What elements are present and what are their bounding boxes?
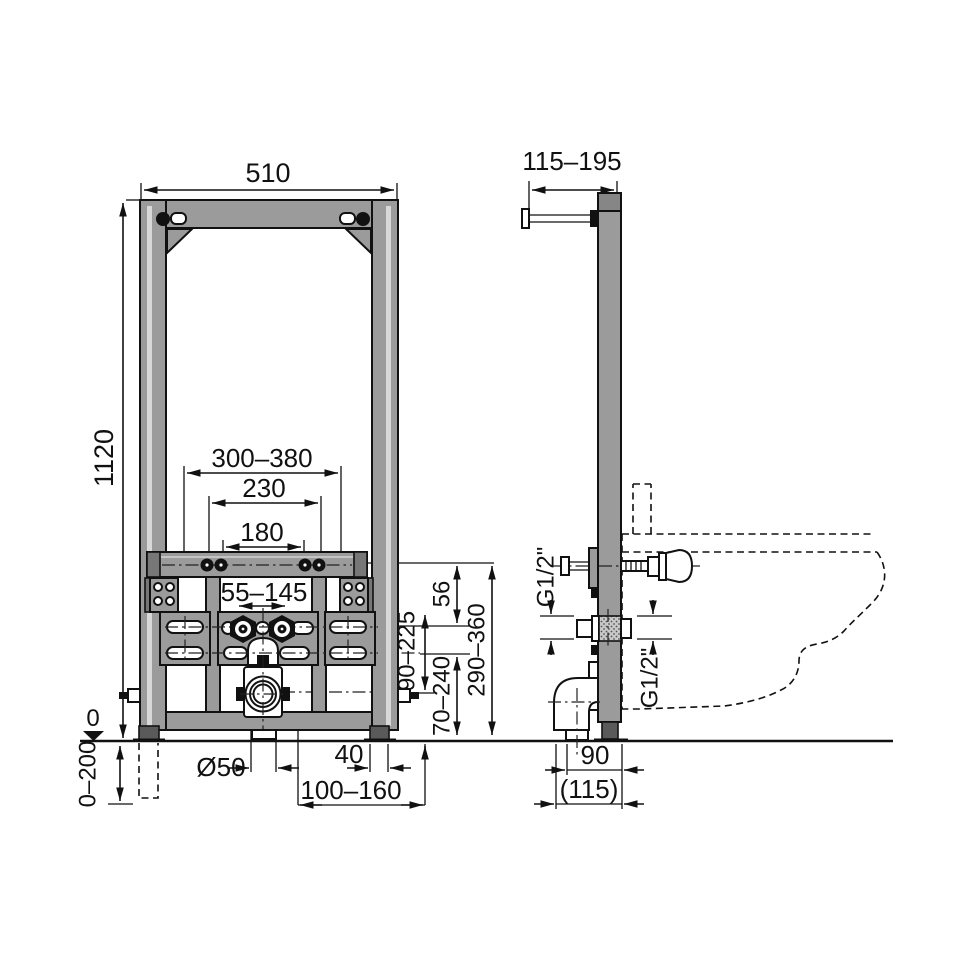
bidet-frame-installation-drawing: 510 1120 300–380 230 180 55–145 56 90–22… [0, 0, 960, 960]
dim-depth-with-elbow: (115) [560, 774, 619, 804]
dim-foot-width: 40 [335, 739, 364, 769]
right-anchor-hole [356, 212, 370, 226]
dim-stud-outer: 230 [242, 473, 285, 503]
dim-stud-inner: 180 [240, 517, 283, 547]
right-corner-gusset [346, 229, 371, 253]
dim-floor-datum: 0 [86, 705, 99, 732]
dim-drain-height-range: 90–225 [394, 611, 421, 691]
datum-triangle [83, 731, 104, 741]
dim-water-thread-right: G1/2" [637, 648, 664, 709]
extended-foot-dashed [139, 743, 158, 798]
wall-anchor-rod [522, 209, 598, 228]
side-column [591, 193, 628, 740]
mounting-rail [147, 552, 367, 577]
left-anchor-hole [156, 212, 170, 226]
dim-drain-diameter: Ø50 [196, 752, 245, 782]
dim-water-spacing: 55–145 [221, 577, 308, 607]
dim-frame-depth: 90 [581, 740, 610, 770]
dim-outlet-offset-range: 100–160 [300, 775, 401, 805]
dim-frame-height: 1120 [89, 429, 119, 487]
left-anchor-slot [171, 213, 186, 224]
dim-frame-width: 510 [245, 158, 290, 188]
dim-water-thread-left: G1/2" [533, 547, 560, 608]
left-fixing-knob [119, 689, 140, 702]
dim-stud-height-range: 290–360 [464, 603, 491, 696]
dim-stud-range: 300–380 [211, 443, 312, 473]
technical-drawing-page: 510 1120 300–380 230 180 55–145 56 90–22… [0, 0, 960, 960]
cone-nut [666, 550, 692, 582]
dim-stud-to-water: 56 [429, 581, 456, 608]
dim-wall-distance-range: 115–195 [522, 146, 621, 176]
right-anchor-slot [340, 213, 355, 224]
dim-outlet-height-range: 70–240 [429, 656, 456, 736]
left-corner-gusset [167, 229, 192, 253]
side-mounting-stud [552, 548, 700, 588]
side-view [522, 181, 885, 809]
dim-feet-adjustment: 0–200 [75, 741, 102, 808]
